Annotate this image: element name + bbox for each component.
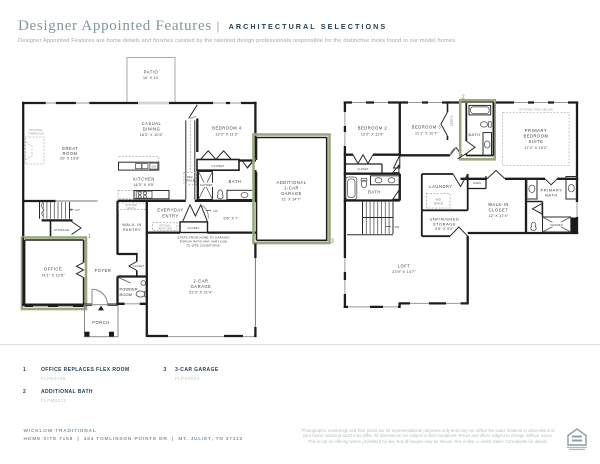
svg-text:FOYER: FOYER bbox=[95, 268, 112, 273]
svg-text:SPACE: SPACE bbox=[434, 201, 443, 205]
svg-text:SHOWER: SHOWER bbox=[550, 223, 563, 227]
svg-text:SUITE: SUITE bbox=[529, 139, 544, 144]
svg-text:STORAGE: STORAGE bbox=[54, 228, 69, 232]
svg-text:BATH: BATH bbox=[368, 190, 381, 195]
svg-text:UP: UP bbox=[213, 209, 218, 213]
svg-text:9'6" X 7': 9'6" X 7' bbox=[223, 217, 238, 221]
svg-text:12'2" X 11'5": 12'2" X 11'5" bbox=[361, 132, 385, 136]
svg-text:CLOSET: CLOSET bbox=[450, 116, 453, 127]
svg-text:POWDER: POWDER bbox=[120, 287, 138, 292]
svg-text:SHOWER: SHOWER bbox=[200, 183, 213, 187]
svg-text:2-CAR: 2-CAR bbox=[193, 279, 208, 284]
svg-text:GARAGE: GARAGE bbox=[191, 284, 212, 289]
svg-text:BEDROOM 2: BEDROOM 2 bbox=[358, 126, 388, 131]
svg-text:1-CAR: 1-CAR bbox=[284, 185, 299, 190]
svg-text:LOFT: LOFT bbox=[398, 264, 411, 269]
svg-text:12' X 17'4": 12' X 17'4" bbox=[489, 214, 509, 218]
svg-text:DINING: DINING bbox=[143, 126, 161, 131]
svg-text:FIREPLACE: FIREPLACE bbox=[28, 132, 44, 136]
svg-text:SPACE: SPACE bbox=[185, 179, 195, 183]
svg-text:BEDROOM 3: BEDROOM 3 bbox=[412, 125, 442, 130]
svg-text:PATIO: PATIO bbox=[144, 70, 158, 75]
svg-text:ROOM: ROOM bbox=[120, 292, 133, 297]
svg-text:10' X 10': 10' X 10' bbox=[143, 76, 159, 80]
svg-text:KITCHEN: KITCHEN bbox=[133, 177, 155, 182]
svg-text:CLOSET: CLOSET bbox=[133, 265, 144, 268]
svg-text:DN: DN bbox=[395, 225, 400, 229]
svg-text:PANTRY: PANTRY bbox=[123, 228, 141, 232]
svg-text:WALK-IN: WALK-IN bbox=[122, 223, 142, 227]
svg-text:PRIMARY: PRIMARY bbox=[525, 128, 547, 133]
svg-text:20' X 19'9": 20' X 19'9" bbox=[60, 157, 80, 161]
svg-text:CASUAL: CASUAL bbox=[142, 121, 162, 126]
svg-text:CLOSET: CLOSET bbox=[188, 226, 200, 230]
svg-text:1: 1 bbox=[88, 234, 92, 240]
svg-text:16'3" X 9'5": 16'3" X 9'5" bbox=[133, 183, 155, 187]
svg-text:DROP ZONE: DROP ZONE bbox=[158, 228, 173, 231]
svg-text:BATH: BATH bbox=[468, 133, 480, 137]
svg-text:ENTRY: ENTRY bbox=[162, 213, 179, 218]
svg-text:UP: UP bbox=[75, 208, 80, 212]
svg-text:REF: REF bbox=[187, 175, 193, 179]
svg-text:14'1" X 12'5": 14'1" X 12'5" bbox=[41, 273, 65, 277]
svg-text:BATH: BATH bbox=[545, 192, 558, 197]
svg-text:CLOSET: CLOSET bbox=[211, 164, 224, 168]
svg-text:BEDROOM: BEDROOM bbox=[523, 134, 548, 139]
svg-text:16'3" X 10'5": 16'3" X 10'5" bbox=[140, 133, 164, 137]
svg-text:11'1" X 11'7": 11'1" X 11'7" bbox=[415, 131, 438, 135]
svg-text:22'3" X 21'4": 22'3" X 21'4" bbox=[189, 290, 213, 294]
svg-text:OPTIONAL TRAY CEILING: OPTIONAL TRAY CEILING bbox=[519, 108, 553, 112]
svg-text:3: 3 bbox=[331, 239, 335, 245]
svg-text:BATH: BATH bbox=[229, 179, 242, 184]
svg-text:23'9" X 14'7": 23'9" X 14'7" bbox=[392, 270, 416, 274]
svg-text:9'5" X 9'2": 9'5" X 9'2" bbox=[435, 227, 455, 231]
svg-text:LAUNDRY: LAUNDRY bbox=[429, 184, 452, 189]
svg-text:LINEN: LINEN bbox=[473, 182, 481, 185]
svg-text:CLOSET: CLOSET bbox=[357, 168, 368, 171]
svg-text:WALK-IN: WALK-IN bbox=[488, 202, 509, 207]
svg-text:STORAGE: STORAGE bbox=[433, 221, 456, 226]
svg-text:ADDITIONAL: ADDITIONAL bbox=[276, 180, 306, 185]
svg-text:CLOSET: CLOSET bbox=[489, 207, 509, 212]
svg-text:GARAGE: GARAGE bbox=[281, 191, 302, 196]
svg-text:12'3" X 11'2": 12'3" X 11'2" bbox=[215, 132, 239, 136]
svg-text:DW: DW bbox=[152, 167, 157, 169]
svg-text:21' X 14'7": 21' X 14'7" bbox=[282, 198, 302, 202]
svg-text:ROOM: ROOM bbox=[63, 151, 78, 156]
svg-text:CEILING: CEILING bbox=[126, 207, 136, 210]
svg-text:OFFICE: OFFICE bbox=[44, 267, 62, 272]
svg-text:EVERYDAY: EVERYDAY bbox=[157, 208, 183, 213]
svg-text:BEDROOM 4: BEDROOM 4 bbox=[212, 126, 242, 131]
svg-text:TO SITE CONDITIONS.: TO SITE CONDITIONS. bbox=[186, 244, 221, 248]
svg-text:17'2" X 15'2": 17'2" X 15'2" bbox=[524, 146, 548, 150]
svg-text:PORCH: PORCH bbox=[92, 320, 110, 325]
